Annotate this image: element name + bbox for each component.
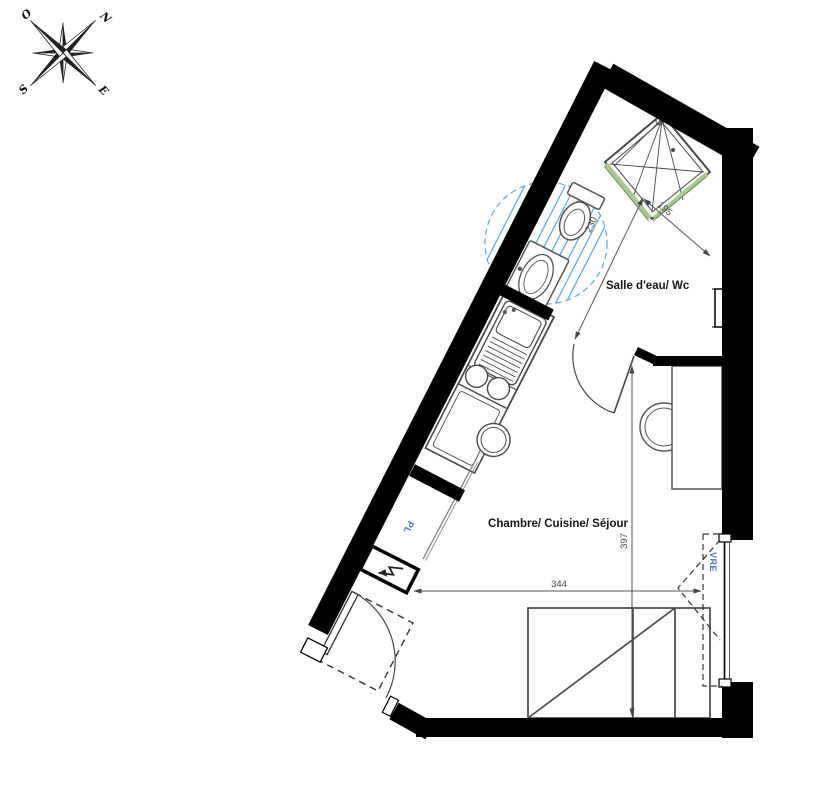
floor-plan-drawing: N O S E Ø150	[0, 0, 822, 800]
right-wall-upper	[722, 128, 753, 540]
compass-star-icon	[31, 21, 96, 86]
dim-label-344: 344	[551, 579, 567, 590]
floor-plan-page: N O S E Ø150	[0, 0, 822, 800]
shutter-label: VRE	[708, 552, 718, 572]
main-room-label: Chambre/ Cuisine/ Séjour	[488, 518, 628, 530]
shower-drain-icon	[671, 148, 675, 152]
dim-label-397: 397	[619, 533, 630, 549]
bathroom-label: Salle d'eau/ Wc	[606, 280, 690, 292]
desk	[672, 366, 722, 489]
